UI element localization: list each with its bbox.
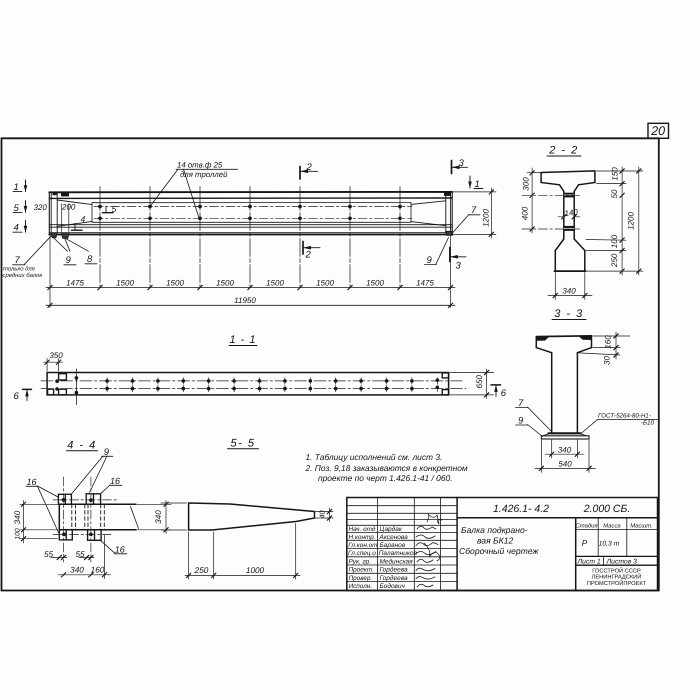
- svg-text:340: 340: [562, 287, 576, 296]
- svg-text:160: 160: [91, 566, 105, 575]
- svg-text:Цардак: Цардак: [380, 526, 403, 533]
- svg-text:320: 320: [34, 203, 48, 212]
- svg-text:16: 16: [110, 476, 120, 486]
- svg-text:1475: 1475: [416, 278, 434, 287]
- svg-text:Аксенова: Аксенова: [379, 534, 409, 541]
- svg-text:1500: 1500: [116, 278, 134, 287]
- svg-text:2 - 2: 2 - 2: [548, 145, 579, 157]
- svg-text:Мединская: Мединская: [380, 558, 414, 565]
- svg-text:Масса: Масса: [603, 522, 621, 529]
- svg-text:ГОСТ-5264-80-Н1-: ГОСТ-5264-80-Н1-: [598, 413, 651, 420]
- svg-text:ГОССТРОЙ СССР: ГОССТРОЙ СССР: [592, 566, 641, 574]
- svg-text:650: 650: [475, 374, 484, 388]
- svg-text:ЛЕНИНГРАДСКИЙ: ЛЕНИНГРАДСКИЙ: [592, 573, 642, 581]
- svg-text:16: 16: [27, 477, 37, 487]
- svg-text:Листов 3: Листов 3: [606, 558, 638, 565]
- svg-text:1 - 1: 1 - 1: [229, 334, 256, 346]
- svg-text:55: 55: [44, 550, 54, 559]
- svg-text:16: 16: [115, 544, 125, 554]
- svg-text:Гл.спец.о: Гл.спец.о: [348, 550, 376, 557]
- svg-text:540: 540: [558, 460, 572, 469]
- svg-text:Сборочный чертеж: Сборочный чертеж: [459, 546, 540, 556]
- svg-text:9: 9: [518, 416, 524, 427]
- svg-text:3: 3: [456, 261, 462, 272]
- svg-text:9: 9: [427, 255, 433, 266]
- svg-text:9: 9: [66, 255, 72, 266]
- svg-text:Палатников: Палатников: [379, 550, 418, 557]
- svg-text:1200: 1200: [482, 209, 491, 227]
- svg-text:Гл.кон.от: Гл.кон.от: [348, 542, 378, 549]
- svg-text:1200: 1200: [627, 212, 636, 230]
- svg-text:Баранов: Баранов: [380, 542, 406, 549]
- svg-text:Гордеева: Гордеева: [380, 567, 408, 574]
- svg-text:6: 6: [14, 391, 20, 402]
- svg-text:350: 350: [49, 351, 63, 360]
- svg-text:2. Поз. 9,18 заказываются в ко: 2. Поз. 9,18 заказываются в конкретном: [305, 463, 468, 473]
- svg-text:2: 2: [305, 250, 312, 261]
- svg-text:Лист 1: Лист 1: [577, 559, 601, 566]
- svg-text:4: 4: [81, 214, 86, 224]
- svg-text:3: 3: [459, 158, 465, 169]
- svg-text:100: 100: [14, 528, 21, 540]
- svg-text:55: 55: [75, 550, 85, 559]
- svg-text:2.000 СБ.: 2.000 СБ.: [583, 503, 631, 515]
- svg-text:Нач. отд: Нач. отд: [349, 526, 376, 533]
- svg-text:Проект.: Проект.: [349, 567, 374, 574]
- svg-text:1.426.1- 4.2: 1.426.1- 4.2: [493, 503, 549, 515]
- svg-text:3 - 3: 3 - 3: [554, 308, 584, 320]
- svg-text:2: 2: [306, 162, 313, 173]
- svg-text:340: 340: [154, 510, 163, 524]
- svg-text:150: 150: [611, 167, 620, 181]
- svg-text:340: 340: [70, 566, 84, 575]
- svg-text:проекте по черт 1.426.1-41 /: проекте по черт 1.426.1-41 / 060.: [318, 473, 452, 483]
- svg-text:1475: 1475: [66, 278, 84, 287]
- svg-text:5: 5: [112, 204, 117, 214]
- svg-text:Стадия: Стадия: [575, 523, 598, 530]
- svg-text:1500: 1500: [316, 278, 334, 287]
- svg-text:средних балок: средних балок: [3, 272, 43, 279]
- svg-text:для троллей: для троллей: [180, 170, 228, 179]
- svg-text:4 - 4: 4 - 4: [67, 440, 97, 452]
- svg-text:1: 1: [14, 182, 19, 193]
- svg-text:Бодович: Бодович: [380, 583, 406, 590]
- svg-text:250: 250: [194, 566, 209, 575]
- svg-text:160: 160: [604, 335, 613, 349]
- svg-text:1: 1: [475, 179, 480, 190]
- svg-text:вая БК12: вая БК12: [477, 536, 513, 546]
- svg-text:340: 340: [13, 510, 22, 524]
- svg-text:30: 30: [603, 356, 612, 365]
- svg-text:340: 340: [558, 446, 572, 455]
- svg-text:только для: только для: [3, 266, 36, 273]
- svg-text:7: 7: [471, 205, 477, 216]
- svg-text:Масшт.: Масшт.: [630, 523, 653, 530]
- svg-text:200: 200: [61, 203, 76, 212]
- svg-text:5- 5: 5- 5: [231, 438, 256, 450]
- svg-text:9: 9: [104, 447, 110, 458]
- svg-text:1. Таблицу исполнений см. лис: 1. Таблицу исполнений см. лист 3.: [306, 452, 443, 462]
- svg-text:300: 300: [522, 177, 531, 191]
- svg-text:50: 50: [610, 189, 619, 198]
- svg-text:Гордеева: Гордеева: [380, 575, 408, 582]
- svg-text:Балка подкрано-: Балка подкрано-: [461, 525, 528, 535]
- svg-text:Н.контр.: Н.контр.: [349, 534, 376, 541]
- svg-text:Рук. гр.: Рук. гр.: [349, 558, 372, 565]
- svg-text:7: 7: [518, 398, 524, 409]
- svg-text:11950: 11950: [234, 296, 256, 305]
- svg-text:Р: Р: [582, 538, 588, 548]
- svg-text:1000: 1000: [246, 566, 265, 575]
- svg-text:1500: 1500: [166, 278, 184, 287]
- svg-text:250: 250: [610, 253, 619, 268]
- svg-text:Исполн.: Исполн.: [349, 583, 373, 590]
- svg-text:140: 140: [564, 207, 579, 218]
- svg-text:ПРОМСТРОЙПРОЕКТ: ПРОМСТРОЙПРОЕКТ: [587, 579, 647, 587]
- svg-text:10,3 т: 10,3 т: [599, 541, 620, 548]
- svg-text:Провер.: Провер.: [349, 575, 373, 582]
- svg-text:40: 40: [318, 511, 327, 519]
- svg-text:7: 7: [15, 255, 21, 266]
- svg-text:8: 8: [87, 254, 93, 265]
- svg-text:20: 20: [650, 124, 665, 138]
- svg-text:6: 6: [501, 388, 507, 399]
- svg-text:14 отв.ф 25: 14 отв.ф 25: [177, 161, 223, 170]
- svg-text:100: 100: [610, 234, 619, 248]
- svg-text:4: 4: [14, 223, 19, 234]
- svg-text:5: 5: [14, 203, 20, 214]
- svg-text:400: 400: [521, 206, 530, 220]
- svg-text:1500: 1500: [216, 278, 234, 287]
- svg-text:1500: 1500: [266, 278, 284, 287]
- svg-text:-Б10: -Б10: [641, 420, 655, 427]
- svg-text:1500: 1500: [366, 278, 384, 287]
